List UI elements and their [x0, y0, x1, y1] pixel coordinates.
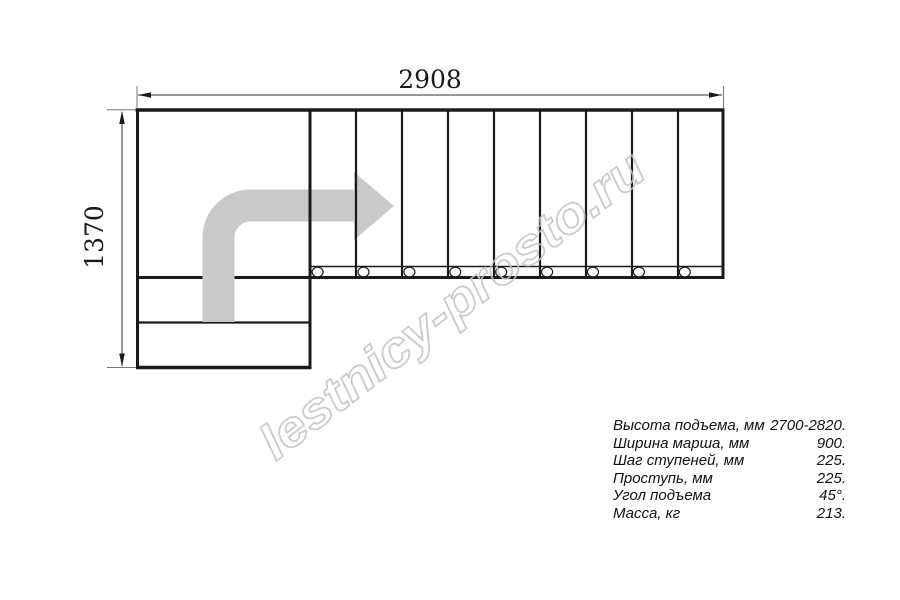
spec-label: Проступь, мм	[613, 470, 713, 488]
spec-label: Шаг ступеней, мм	[613, 452, 744, 470]
spec-value: 900.	[817, 435, 846, 453]
spec-value: 225.	[817, 470, 846, 488]
dimension-height-label: 1370	[80, 205, 109, 269]
connector-circle	[312, 267, 323, 277]
dim-arrow-top	[119, 111, 125, 124]
dim-arrow-bottom	[119, 354, 125, 367]
direction-arrow	[219, 206, 356, 323]
spec-value: 2700-2820.	[770, 417, 846, 435]
spec-row: Шаг ступеней, мм 225.	[613, 452, 846, 470]
spec-row: Угол подъема 45°.	[613, 487, 846, 505]
spec-value: 45°.	[819, 487, 846, 505]
specs-table: Высота подъема, мм 2700-2820. Ширина мар…	[613, 417, 846, 522]
connector-circle	[588, 267, 599, 277]
connector-circle	[679, 267, 690, 277]
spec-label: Угол подъема	[613, 487, 711, 505]
dim-arrow-right	[709, 92, 722, 98]
dim-arrow-left	[138, 92, 151, 98]
spec-value: 213.	[817, 505, 846, 523]
connector-circle	[358, 267, 369, 277]
direction-arrow-head	[354, 172, 394, 240]
spec-label: Высота подъема, мм	[613, 417, 765, 435]
spec-label: Масса, кг	[613, 505, 680, 523]
stair-plan-drawing: 2908 1370 lestnicy-prosto.ru Высота подъ…	[0, 0, 900, 600]
spec-value: 225.	[817, 452, 846, 470]
connector-circle	[633, 267, 644, 277]
spec-row: Высота подъема, мм 2700-2820.	[613, 417, 846, 435]
dimension-width-label: 2908	[398, 65, 462, 94]
spec-row: Ширина марша, мм 900.	[613, 435, 846, 453]
connector-circle	[404, 267, 415, 277]
spec-row: Масса, кг 213.	[613, 505, 846, 523]
spec-label: Ширина марша, мм	[613, 435, 749, 453]
spec-row: Проступь, мм 225.	[613, 470, 846, 488]
